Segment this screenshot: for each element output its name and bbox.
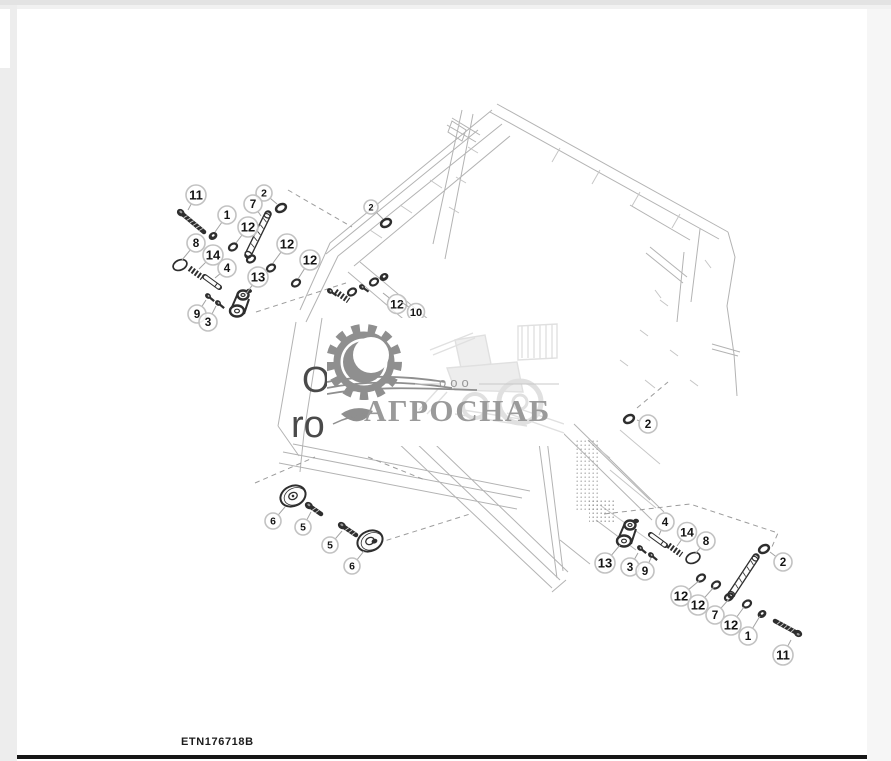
svg-text:11: 11 (776, 648, 790, 663)
callout-6: 6 (344, 558, 360, 574)
watermark-company-type: ооо (439, 375, 473, 390)
svg-text:8: 8 (703, 535, 710, 548)
callout-13: 13 (248, 267, 268, 287)
part-number-code: ETN176718B (181, 736, 254, 748)
callout-5: 5 (322, 537, 338, 553)
callout-12: 12 (238, 217, 258, 237)
callout-3: 3 (199, 313, 217, 331)
svg-text:6: 6 (270, 517, 276, 528)
callout-9: 9 (636, 562, 654, 580)
svg-text:13: 13 (251, 270, 265, 285)
svg-text:3: 3 (205, 316, 212, 329)
svg-text:5: 5 (300, 523, 306, 534)
svg-text:9: 9 (642, 565, 649, 578)
svg-text:12: 12 (390, 297, 404, 311)
hidden-underlay-text-2: ro (291, 406, 325, 444)
speckle-texture-patch (589, 499, 615, 523)
svg-text:14: 14 (206, 248, 221, 263)
callout-8: 8 (187, 234, 205, 252)
callout-7: 7 (244, 195, 262, 213)
watermark: ооо АГРОСНАБ (327, 318, 564, 446)
callout-13: 13 (595, 553, 615, 573)
svg-text:2: 2 (780, 556, 787, 569)
footer-divider-line (17, 755, 867, 759)
svg-text:4: 4 (224, 262, 231, 275)
svg-text:2: 2 (368, 202, 373, 212)
svg-text:14: 14 (680, 525, 694, 539)
callout-4: 4 (218, 259, 236, 277)
svg-text:4: 4 (662, 516, 669, 529)
callout-2: 2 (364, 200, 378, 214)
callout-12: 12 (300, 250, 320, 270)
callout-1: 1 (218, 206, 236, 224)
callout-4: 4 (656, 513, 674, 531)
svg-text:2: 2 (645, 418, 652, 431)
svg-text:12: 12 (280, 237, 294, 252)
callout-2: 2 (774, 553, 792, 571)
svg-text:1: 1 (224, 209, 231, 222)
svg-text:6: 6 (349, 562, 355, 573)
callout-8: 8 (697, 532, 715, 550)
callout-11: 11 (186, 185, 206, 205)
parts-diagram-page: 1127112814124121393212102655613394148212… (0, 0, 891, 761)
svg-text:7: 7 (712, 609, 719, 622)
svg-text:12: 12 (241, 220, 255, 235)
svg-text:12: 12 (691, 598, 705, 613)
svg-text:7: 7 (250, 198, 257, 211)
hidden-underlay-text-1: O (302, 362, 330, 398)
svg-text:11: 11 (189, 188, 203, 203)
svg-text:2: 2 (261, 189, 267, 200)
svg-text:13: 13 (598, 556, 612, 571)
callout-2: 2 (639, 415, 657, 433)
callout-1: 1 (739, 627, 757, 645)
svg-text:5: 5 (327, 541, 333, 552)
callout-6: 6 (265, 513, 281, 529)
callout-5: 5 (295, 519, 311, 535)
svg-text:12: 12 (724, 618, 738, 633)
svg-text:12: 12 (303, 253, 317, 268)
watermark-company-name: АГРОСНАБ (364, 393, 551, 429)
callout-12: 12 (277, 234, 297, 254)
callout-14: 14 (678, 523, 697, 542)
callout-11: 11 (773, 645, 793, 665)
svg-text:1: 1 (745, 630, 752, 643)
svg-text:8: 8 (193, 237, 200, 250)
callout-12: 12 (721, 615, 741, 635)
svg-text:3: 3 (627, 561, 634, 574)
callout-12: 12 (688, 595, 708, 615)
svg-text:12: 12 (674, 589, 688, 604)
